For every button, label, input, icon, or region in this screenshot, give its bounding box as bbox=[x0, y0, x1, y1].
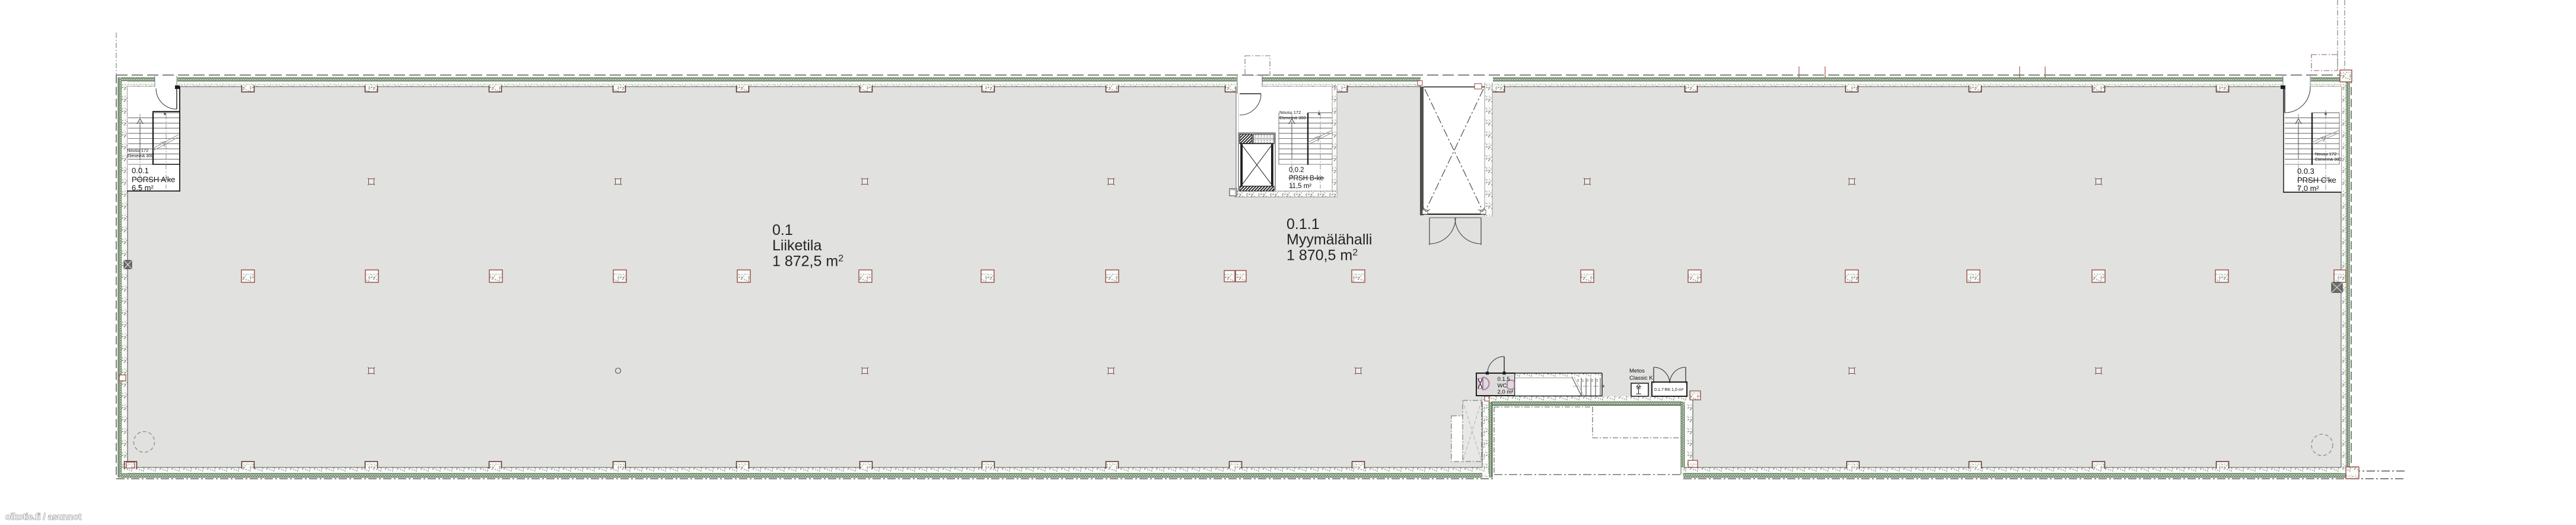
svg-text:Nousu 172: Nousu 172 bbox=[2315, 151, 2336, 157]
svg-text:18: 18 bbox=[1577, 378, 1580, 382]
svg-text:PRSH B-ke: PRSH B-ke bbox=[1289, 175, 1324, 182]
svg-text:0,0.2: 0,0.2 bbox=[1289, 167, 1304, 174]
svg-text:Etenemä 300: Etenemä 300 bbox=[1279, 115, 1306, 120]
svg-text:Etenemä 300: Etenemä 300 bbox=[127, 153, 154, 158]
svg-text:0.1.7 RK 1,0 m²: 0.1.7 RK 1,0 m² bbox=[1654, 387, 1684, 392]
svg-text:PRSH C’ke: PRSH C’ke bbox=[2297, 176, 2336, 184]
svg-text:0.0.3: 0.0.3 bbox=[2297, 167, 2314, 176]
svg-text:6,5 m²: 6,5 m² bbox=[132, 183, 154, 192]
svg-text:Myymälähalli: Myymälähalli bbox=[1287, 231, 1372, 248]
svg-text:Liiketila: Liiketila bbox=[772, 237, 821, 254]
svg-text:14: 14 bbox=[1596, 378, 1599, 382]
svg-text:0.1: 0.1 bbox=[772, 222, 793, 238]
svg-text:2,0 m²: 2,0 m² bbox=[1498, 389, 1514, 396]
svg-text:0.0.1: 0.0.1 bbox=[132, 166, 149, 175]
svg-text:1 872,5 m2: 1 872,5 m2 bbox=[772, 253, 843, 270]
svg-text:0.1.1: 0.1.1 bbox=[1287, 216, 1320, 233]
svg-text:16: 16 bbox=[1586, 378, 1589, 382]
svg-text:oikotie.fi / asunnot: oikotie.fi / asunnot bbox=[5, 513, 81, 522]
svg-text:0.1.5: 0.1.5 bbox=[1498, 376, 1510, 383]
svg-text:1 870,5 m2: 1 870,5 m2 bbox=[1287, 247, 1358, 264]
svg-text:17: 17 bbox=[1581, 378, 1584, 382]
svg-text:Nousu 172: Nousu 172 bbox=[1279, 110, 1301, 115]
svg-text:11,5 m²: 11,5 m² bbox=[1289, 183, 1311, 190]
svg-text:Nousu 172: Nousu 172 bbox=[127, 148, 148, 153]
svg-text:Classic K: Classic K bbox=[1629, 375, 1653, 381]
svg-text:7,0 m²: 7,0 m² bbox=[2297, 184, 2320, 193]
svg-text:Metos: Metos bbox=[1629, 368, 1645, 374]
svg-text:15: 15 bbox=[1591, 378, 1594, 382]
svg-text:Etenemä 300: Etenemä 300 bbox=[2315, 157, 2342, 162]
svg-text:PORSH A’ke: PORSH A’ke bbox=[132, 175, 175, 184]
svg-text:WC: WC bbox=[1498, 383, 1507, 389]
